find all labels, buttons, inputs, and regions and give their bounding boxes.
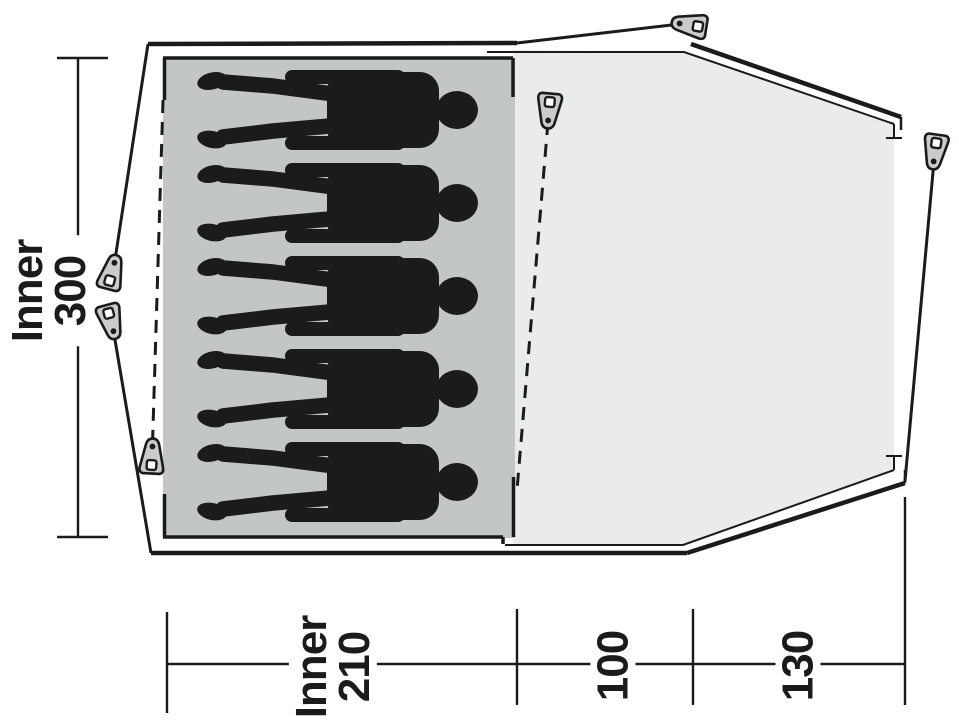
guy-line-dashed-left	[153, 100, 164, 444]
guy-line-bottom-left	[114, 331, 152, 553]
inner-border-bottom	[163, 537, 503, 544]
tent-peg-icon	[96, 252, 128, 292]
guy-line-top	[517, 24, 680, 43]
inner-depth-label-word: Inner	[290, 616, 333, 719]
tent-peg-icon	[139, 438, 165, 474]
porch-door-depth-label: 130	[775, 627, 820, 705]
fly-top-edge	[148, 43, 517, 44]
porch-front-depth-label: 100	[590, 627, 635, 705]
inner-width-label-word: Inner	[6, 240, 49, 343]
tent-peg-icon	[95, 302, 127, 342]
guy-line-top-left	[115, 44, 149, 263]
inner-width-label-value: 300	[49, 240, 92, 343]
tent-peg-icon	[921, 133, 949, 171]
porch-area	[513, 50, 894, 545]
tent-peg-icon	[670, 11, 708, 40]
guy-line-right	[905, 161, 934, 481]
porch-door-depth-value: 130	[776, 631, 819, 701]
tent-floorplan-drawing	[0, 0, 959, 728]
inner-width-label: Inner 300	[5, 236, 93, 347]
inner-depth-label: Inner 210	[289, 612, 377, 723]
porch-front-depth-value: 100	[591, 631, 634, 701]
tent-floorplan-diagram: Inner 300 Inner 210 100 130	[0, 0, 959, 728]
inner-depth-label-value: 210	[333, 616, 376, 719]
